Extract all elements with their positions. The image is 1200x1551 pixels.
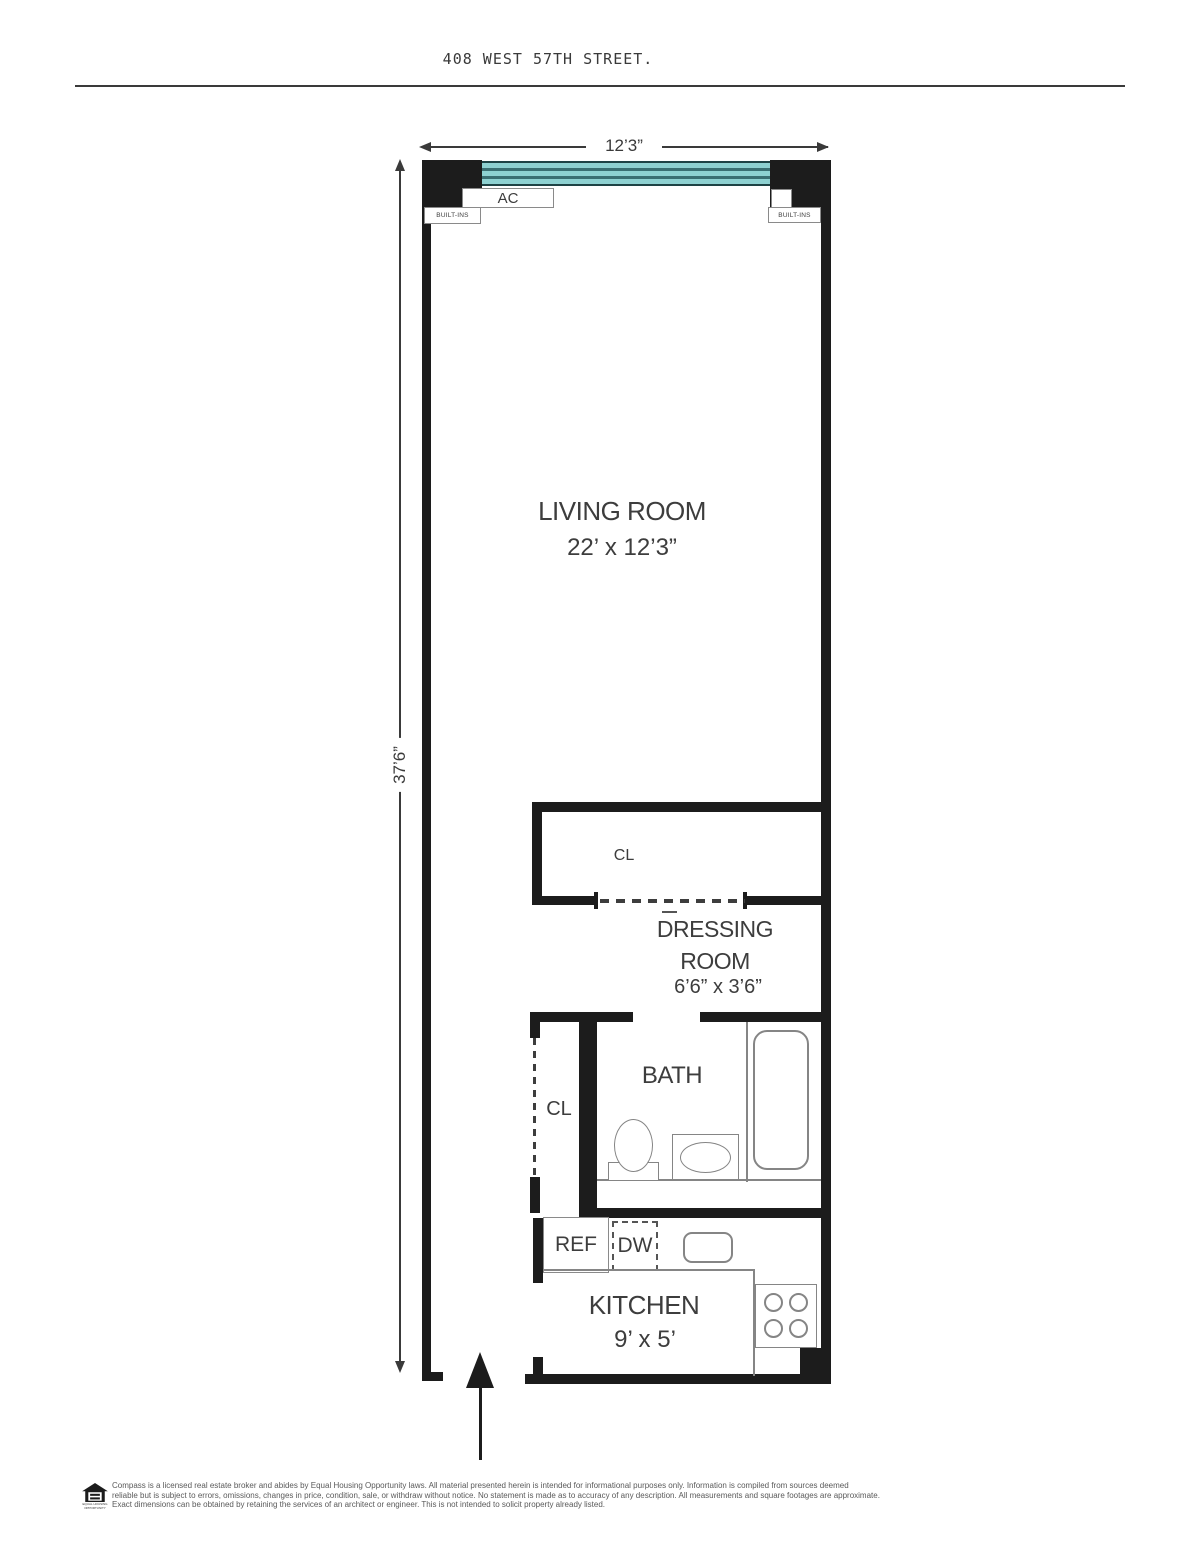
living-room-name: LIVING ROOM: [538, 496, 706, 527]
dressing-room-size: 6’6” x 3’6”: [674, 976, 762, 999]
built-ins-right-label: BUILT-INS: [778, 212, 810, 219]
floorplan-page: 408 WEST 57TH STREET. 12’3” 37’6” AC BUI…: [0, 0, 1200, 1551]
kitchen-size: 9’ x 5’: [614, 1326, 676, 1354]
built-ins-left-label: BUILT-INS: [436, 212, 468, 219]
hall-closet-door-dashed: [533, 1038, 536, 1177]
arrow-up-icon: [395, 159, 405, 171]
built-ins-left: BUILT-INS: [424, 207, 481, 224]
bath-top-wall-right: [700, 1012, 821, 1022]
ref-label: REF: [555, 1233, 597, 1257]
dressing-room-name-line1: DRESSING: [657, 916, 773, 943]
bath-bottom-wall: [579, 1208, 821, 1218]
kitchen-sink-icon: [683, 1232, 733, 1263]
top-dimension-label: 12’3”: [586, 136, 662, 156]
arrow-left-icon: [419, 142, 431, 152]
kitchen-name: KITCHEN: [589, 1290, 700, 1321]
kitchen-corner-block: [800, 1348, 831, 1380]
kitchen-door-jamb: [533, 1357, 543, 1375]
disclaimer-line-3: Exact dimensions can be obtained by reta…: [112, 1500, 605, 1510]
page-title: 408 WEST 57TH STREET.: [443, 50, 654, 68]
left-dimension-label: 37’6”: [390, 738, 410, 792]
bath-closet-divider-wall: [579, 1012, 597, 1212]
disclaimer-line-1: Compass is a licensed real estate broker…: [112, 1481, 849, 1491]
tub-partition-line: [746, 1022, 748, 1182]
left-wall-foot: [422, 1372, 443, 1381]
kitchen-left-wall: [533, 1218, 543, 1283]
window-band-icon: [482, 161, 770, 186]
stove-burner-icon: [789, 1293, 808, 1312]
built-ins-right-notch: [771, 189, 792, 208]
stove-burner-icon: [764, 1293, 783, 1312]
bath-name: BATH: [642, 1062, 702, 1090]
closet-door-jamb-left: [594, 892, 598, 909]
entry-arrow-line: [479, 1386, 482, 1460]
closet-bottom-wall-right: [745, 896, 821, 905]
stove-icon: [755, 1284, 817, 1348]
dishwasher-icon: DW: [612, 1221, 658, 1271]
closet-bottom-wall-left: [532, 896, 598, 905]
stove-burner-icon: [789, 1319, 808, 1338]
right-wall: [821, 160, 831, 1384]
header-divider: [75, 85, 1125, 87]
stove-burner-icon: [764, 1319, 783, 1338]
counter-edge-top: [543, 1269, 755, 1271]
toilet-bowl-icon: [614, 1119, 653, 1172]
closet-sliding-door-dashed: [600, 899, 745, 903]
ac-unit: AC: [462, 188, 554, 208]
bottom-wall: [525, 1374, 831, 1384]
closet-top-wall: [532, 802, 821, 812]
entry-arrow-icon: [466, 1352, 494, 1388]
equal-housing-logo: [82, 1483, 108, 1502]
living-room-size: 22’ x 12’3”: [567, 534, 677, 562]
left-wall: [422, 160, 431, 1372]
refrigerator-icon: REF: [543, 1217, 609, 1273]
bathtub-icon: [753, 1030, 809, 1170]
equal-housing-logo-caption: EQUAL HOUSING OPPORTUNITY: [82, 1502, 108, 1510]
arrow-down-icon: [395, 1361, 405, 1373]
ac-label: AC: [498, 190, 519, 207]
built-ins-right: BUILT-INS: [768, 207, 821, 223]
hall-closet-label: CL: [546, 1098, 572, 1121]
disclaimer-line-2: reliable but is subject to errors, omiss…: [112, 1491, 880, 1501]
hall-closet-jamb-bottom: [530, 1177, 540, 1213]
dw-label: DW: [618, 1234, 653, 1258]
dressing-door-tick: [662, 911, 677, 913]
closet-upper-label: CL: [614, 847, 634, 865]
closet-left-wall: [532, 802, 542, 905]
dressing-room-name-line2: ROOM: [680, 948, 750, 975]
arrow-right-icon: [817, 142, 829, 152]
bathroom-sink-basin-icon: [680, 1142, 731, 1173]
